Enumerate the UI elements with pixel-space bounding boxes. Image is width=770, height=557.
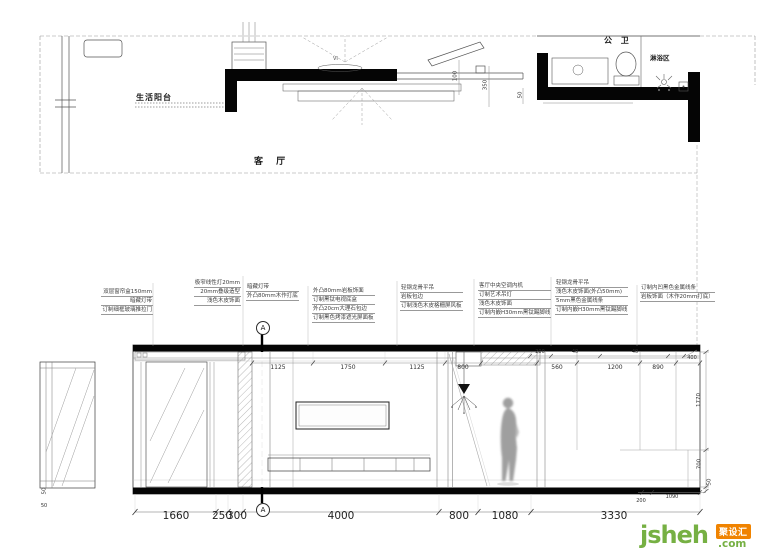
section-marker-top: A — [256, 321, 270, 335]
note-line: 订制浅色木皮格栅屏风板 — [400, 302, 463, 311]
small-dim: 40 — [572, 349, 578, 355]
note-column-5: 轻钢龙骨平吊 岩板包边 订制浅色木皮格栅屏风板 — [400, 284, 463, 311]
note-column-2: 极窄线性灯20mm 20mm叠级造型 浅色木皮饰面 — [194, 279, 241, 306]
note-line: 订制艺术吊灯 — [478, 291, 551, 300]
site-watermark: jsheh 聚设汇 .com — [640, 521, 765, 553]
right-dim-1770: 1770 — [696, 393, 702, 407]
top-dim: 1125 — [270, 364, 285, 371]
note-line: 暗藏灯带 — [101, 297, 153, 306]
top-dim: 1750 — [340, 364, 355, 371]
bottom-dim: 1080 — [492, 510, 519, 522]
note-line: 订制内嵌H30mm黑钛踢脚线 — [555, 306, 628, 315]
bottom-dim: 800 — [449, 510, 469, 522]
note-line: 订制黑钛电视底盒 — [312, 296, 375, 305]
note-column-4: 外凸80mm岩板饰面 订制黑钛电视底盒 外凸20cm大理石包边 订制黑色烤漆遮光… — [312, 287, 375, 323]
right-dim-700: 700 — [696, 459, 702, 470]
drawing-linework — [0, 0, 770, 557]
note-line: 岩板饰面（木作20mm打底） — [640, 293, 715, 302]
small-dim: 200 — [535, 349, 545, 355]
top-dim: 1125 — [409, 364, 424, 371]
note-line: 浅色木皮饰面 — [194, 297, 241, 306]
fixture-tag: VI — [333, 56, 338, 62]
note-line: 订制黑色烤漆遮光屏面板 — [312, 314, 375, 323]
small-dim: 400 — [687, 355, 697, 361]
note-line: 外凸20cm大理石包边 — [312, 305, 375, 314]
top-dim: 800 — [457, 364, 468, 371]
elevation-linework — [40, 333, 700, 503]
figure-silhouette — [501, 398, 519, 481]
room-label-bathroom: 公 卫 — [604, 35, 632, 46]
note-line: 20mm叠级造型 — [194, 288, 241, 297]
note-line: 订制细框玻璃推拉门 — [101, 306, 153, 315]
logo-brand-text: jsheh — [640, 521, 708, 549]
note-column-8: 订制内凹黑色金属线条 岩板饰面（木作20mm打底） — [640, 284, 715, 302]
note-column-3: 暗藏灯带 外凸80mm木作打底 — [246, 283, 299, 301]
drawing-sheet: 生活阳台 客 厅 公 卫 淋浴区 VI 100 350 50 双层窗帘盒150m… — [0, 0, 770, 557]
note-line: 浅色木皮饰面 — [478, 300, 551, 309]
bottom-dim: 300 — [227, 510, 247, 522]
note-line: 极窄线性灯20mm — [194, 279, 241, 288]
note-line: 5mm黑色金属线条 — [555, 297, 628, 306]
left-dim-50b: 50 — [41, 503, 47, 509]
note-line: 客厅中央空调内机 — [478, 282, 551, 291]
note-line: 轻钢龙骨平吊 — [555, 279, 628, 288]
right-dim-50: 50 — [707, 479, 713, 486]
note-line: 浅色木皮饰面(外凸50mm) — [555, 288, 628, 297]
logo-suffix-text: .com — [718, 538, 746, 550]
right-bottom-dim-1090: 1090 — [666, 494, 679, 500]
note-line: 双层窗帘盒150mm — [101, 288, 153, 297]
note-line: 轻钢龙骨平吊 — [400, 284, 463, 293]
bottom-dim: 4000 — [328, 510, 355, 522]
top-dim: 890 — [652, 364, 663, 371]
note-line: 外凸80mm岩板饰面 — [312, 287, 375, 296]
top-dim: 1200 — [607, 364, 622, 371]
logo-badge: 聚设汇 — [716, 524, 751, 539]
room-label-balcony: 生活阳台 — [136, 92, 172, 103]
small-dim: 40 — [632, 349, 638, 355]
note-column-1: 双层窗帘盒150mm 暗藏灯带 订制细框玻璃推拉门 — [101, 288, 153, 315]
right-bottom-dim-200: 200 — [636, 498, 646, 504]
left-dim-50a: 50 — [42, 488, 48, 495]
bottom-dim: 3330 — [601, 510, 628, 522]
note-column-7: 轻钢龙骨平吊 浅色木皮饰面(外凸50mm) 5mm黑色金属线条 订制内嵌H30m… — [555, 279, 628, 315]
top-dim: 560 — [551, 364, 562, 371]
plan-dim-350: 350 — [482, 80, 488, 91]
note-line: 订制内嵌H30mm黑钛踢脚线 — [478, 309, 551, 318]
room-label-shower: 淋浴区 — [650, 52, 670, 62]
note-line: 岩板包边 — [400, 293, 463, 302]
section-marker-bottom: A — [256, 503, 270, 517]
room-label-living: 客 厅 — [254, 154, 290, 167]
plan-dim-50: 50 — [518, 92, 524, 99]
plan-dim-100: 100 — [452, 71, 458, 82]
note-line: 暗藏灯带 — [246, 283, 299, 292]
bottom-dim: 1660 — [163, 510, 190, 522]
note-line: 外凸80mm木作打底 — [246, 292, 299, 301]
note-line: 订制内凹黑色金属线条 — [640, 284, 715, 293]
note-column-6: 客厅中央空调内机 订制艺术吊灯 浅色木皮饰面 订制内嵌H30mm黑钛踢脚线 — [478, 282, 551, 318]
